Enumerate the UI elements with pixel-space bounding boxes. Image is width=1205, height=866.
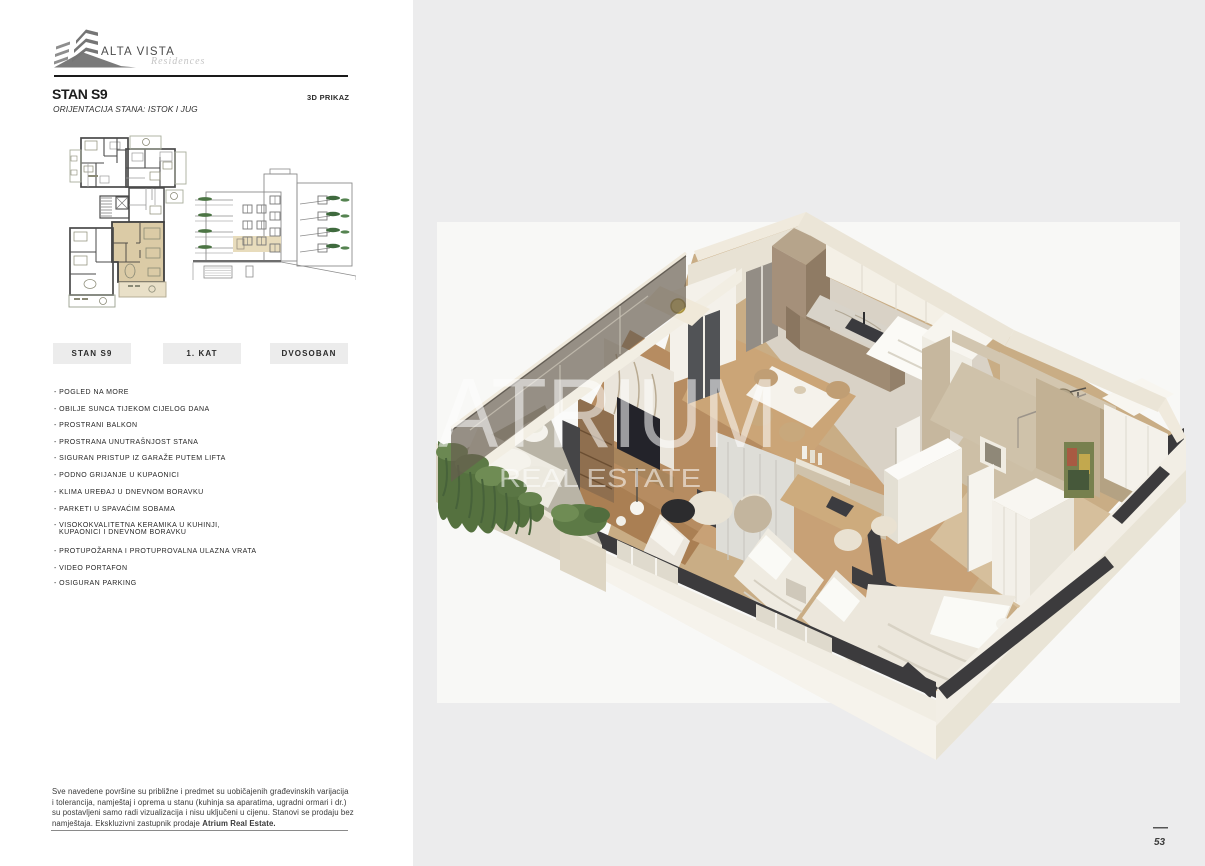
svg-text:ATRIUM: ATRIUM: [438, 358, 778, 468]
svg-text:Residences: Residences: [150, 56, 205, 67]
svg-text:REAL ESTATE: REAL ESTATE: [499, 463, 701, 493]
svg-text:53: 53: [1154, 837, 1166, 848]
